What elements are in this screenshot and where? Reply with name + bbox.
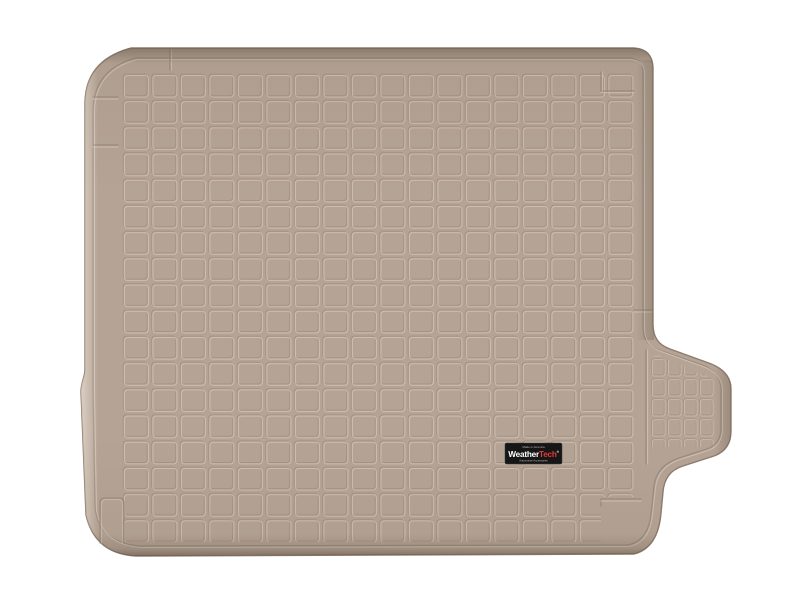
cargo-liner-mat xyxy=(78,46,738,558)
badge-brand-text: WeatherTech® xyxy=(508,450,559,459)
badge-bottom-text: Automotive Accessories xyxy=(519,459,548,463)
cargo-liner-illustration: Made in America WeatherTech® Automotive … xyxy=(0,0,800,600)
product-photo: Made in America WeatherTech® Automotive … xyxy=(0,0,800,600)
badge-top-text: Made in America xyxy=(522,445,545,449)
weathertech-badge: Made in America WeatherTech® Automotive … xyxy=(505,443,562,464)
edge-shading xyxy=(78,46,738,558)
badge-brand-weather: Weather xyxy=(508,450,540,459)
badge-brand-tech: Tech xyxy=(539,450,557,459)
